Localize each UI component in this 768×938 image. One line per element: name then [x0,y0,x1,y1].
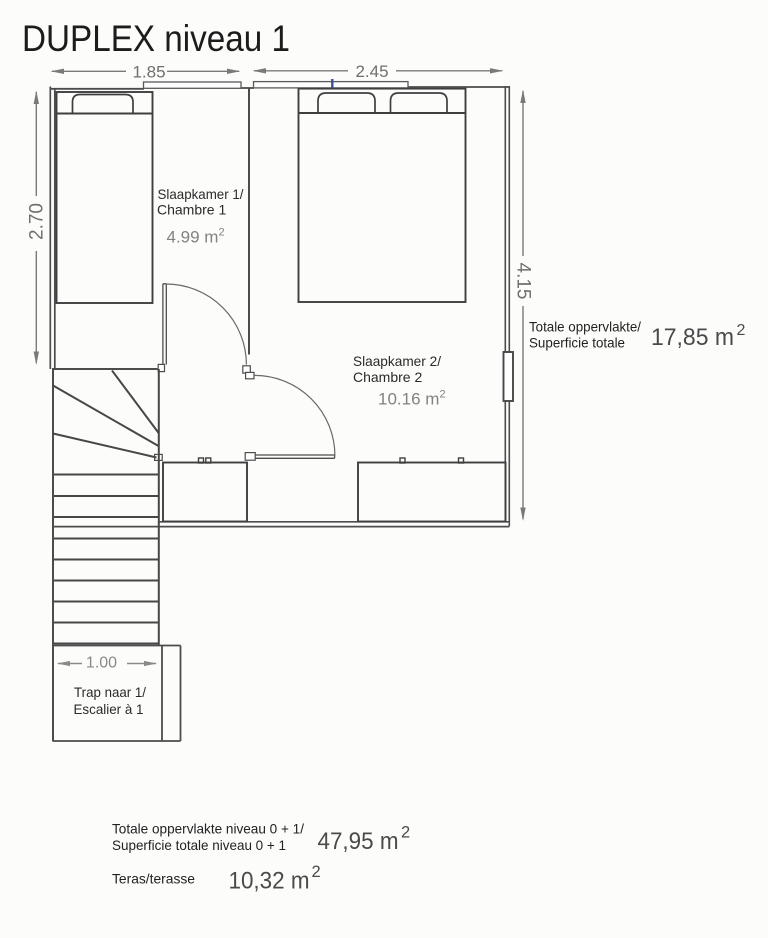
svg-text:Trap naar 1/: Trap naar 1/ [74,684,146,700]
svg-text:Slaapkamer 2/: Slaapkamer 2/ [353,353,441,369]
svg-text:2: 2 [312,863,321,881]
svg-text:Chambre 2: Chambre 2 [353,369,422,385]
svg-text:1.00: 1.00 [86,655,117,672]
svg-text:Teras/terasse: Teras/terasse [112,871,195,887]
svg-text:47,95 m: 47,95 m [318,828,399,855]
svg-text:2.45: 2.45 [355,62,388,81]
svg-text:Chambre 1: Chambre 1 [157,202,226,218]
svg-text:17,85 m: 17,85 m [651,324,734,351]
svg-text:2: 2 [401,824,410,842]
svg-text:Superficie totale: Superficie totale [529,335,625,351]
svg-text:10,32 m: 10,32 m [229,868,310,895]
svg-text:10.16 m2: 10.16 m2 [378,388,446,408]
svg-text:Escalier à 1: Escalier à 1 [74,701,144,717]
svg-text:Slaapkamer 1/: Slaapkamer 1/ [158,186,244,202]
svg-text:2: 2 [737,322,746,339]
svg-text:Totale oppervlakte/: Totale oppervlakte/ [529,319,641,335]
svg-text:Superficie totale niveau 0 + 1: Superficie totale niveau 0 + 1 [112,837,286,853]
svg-text:2.70: 2.70 [27,203,48,240]
svg-text:4.99 m2: 4.99 m2 [167,227,225,247]
svg-text:4.15: 4.15 [512,263,533,300]
svg-text:Totale oppervlakte niveau 0 +: Totale oppervlakte niveau 0 + 1/ [112,821,304,837]
svg-text:DUPLEX niveau 1: DUPLEX niveau 1 [22,18,290,59]
svg-text:1.85: 1.85 [132,62,165,81]
